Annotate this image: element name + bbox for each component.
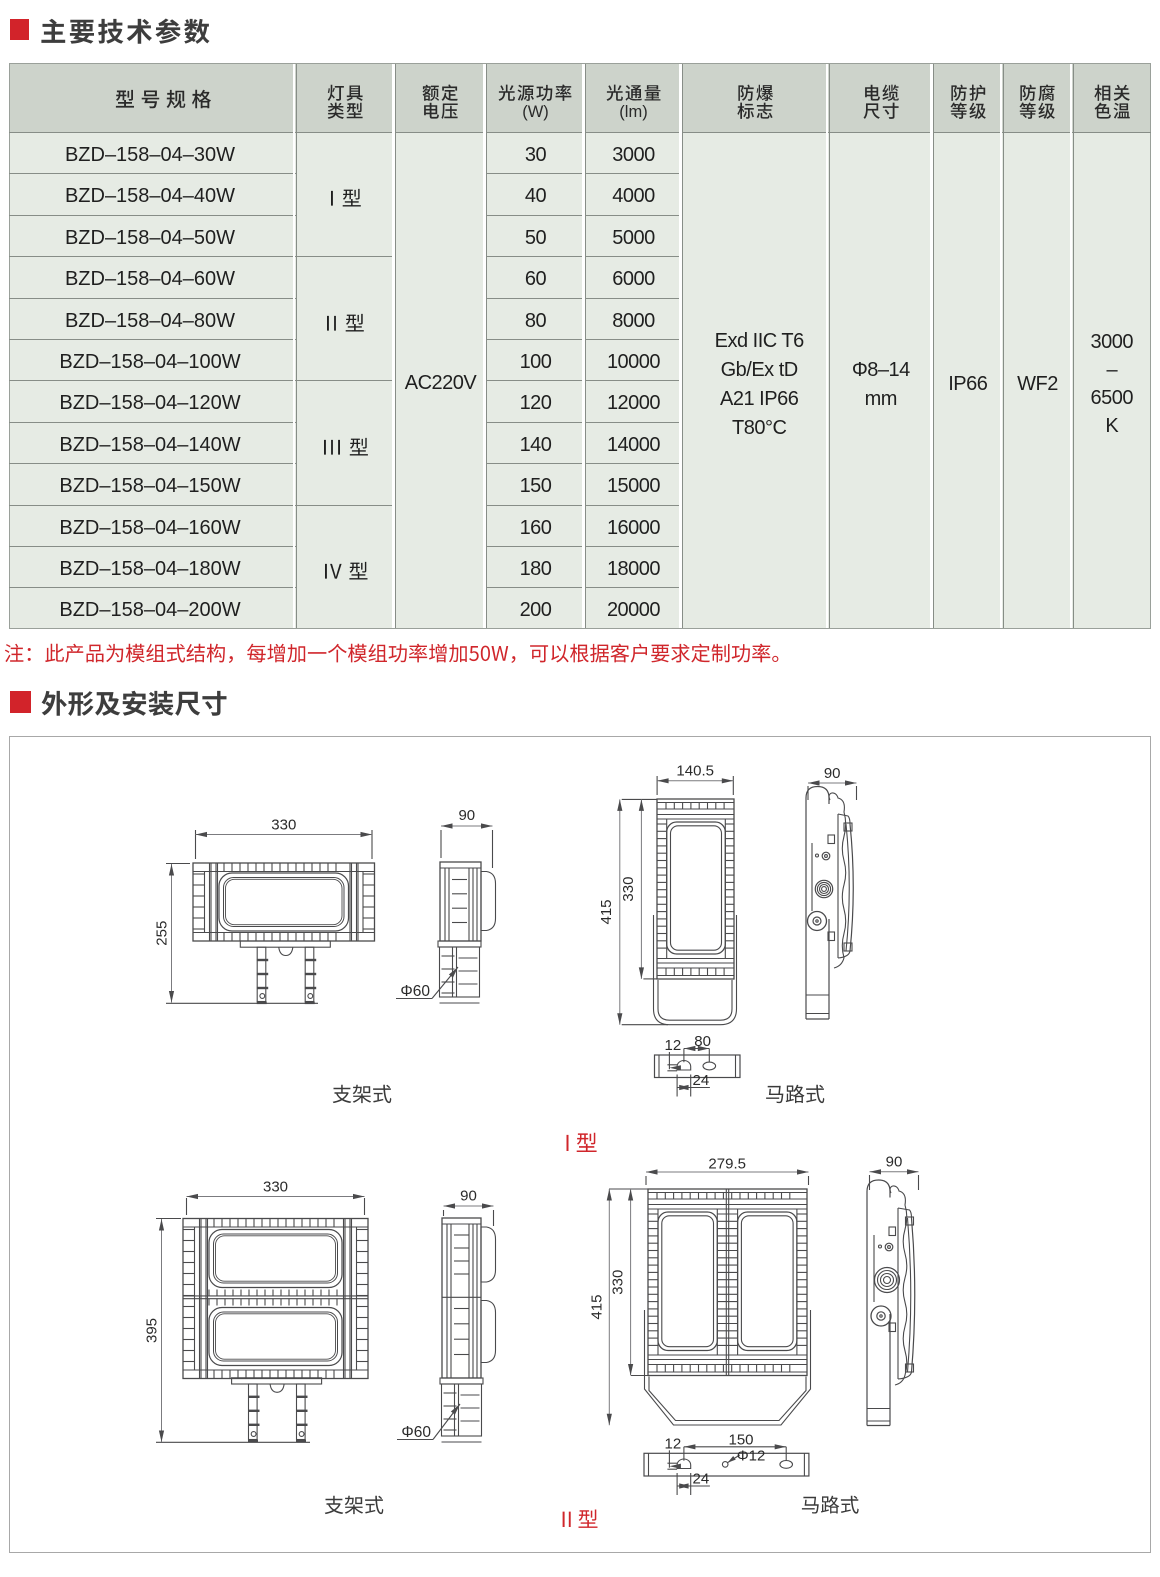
- svg-text:90: 90: [458, 807, 475, 824]
- svg-text:330: 330: [271, 817, 296, 834]
- svg-text:255: 255: [154, 921, 171, 946]
- svg-text:12: 12: [665, 1435, 682, 1452]
- svg-text:395: 395: [144, 1318, 161, 1343]
- svg-text:415: 415: [598, 899, 615, 924]
- svg-text:140.5: 140.5: [676, 763, 714, 780]
- svg-text:415: 415: [589, 1295, 606, 1320]
- svg-text:12: 12: [665, 1037, 682, 1054]
- svg-text:Φ60: Φ60: [400, 983, 430, 1000]
- svg-text:279.5: 279.5: [708, 1156, 746, 1173]
- svg-text:90: 90: [460, 1188, 477, 1205]
- svg-text:150: 150: [728, 1431, 753, 1448]
- svg-text:90: 90: [824, 765, 841, 782]
- svg-text:330: 330: [610, 1270, 627, 1295]
- svg-text:Φ60: Φ60: [401, 1424, 431, 1441]
- svg-text:80: 80: [694, 1033, 711, 1050]
- svg-text:24: 24: [693, 1471, 710, 1488]
- svg-text:330: 330: [263, 1179, 288, 1196]
- svg-text:330: 330: [620, 877, 637, 902]
- svg-text:90: 90: [886, 1154, 903, 1171]
- svg-text:Φ12: Φ12: [737, 1448, 766, 1465]
- svg-text:24: 24: [693, 1072, 710, 1089]
